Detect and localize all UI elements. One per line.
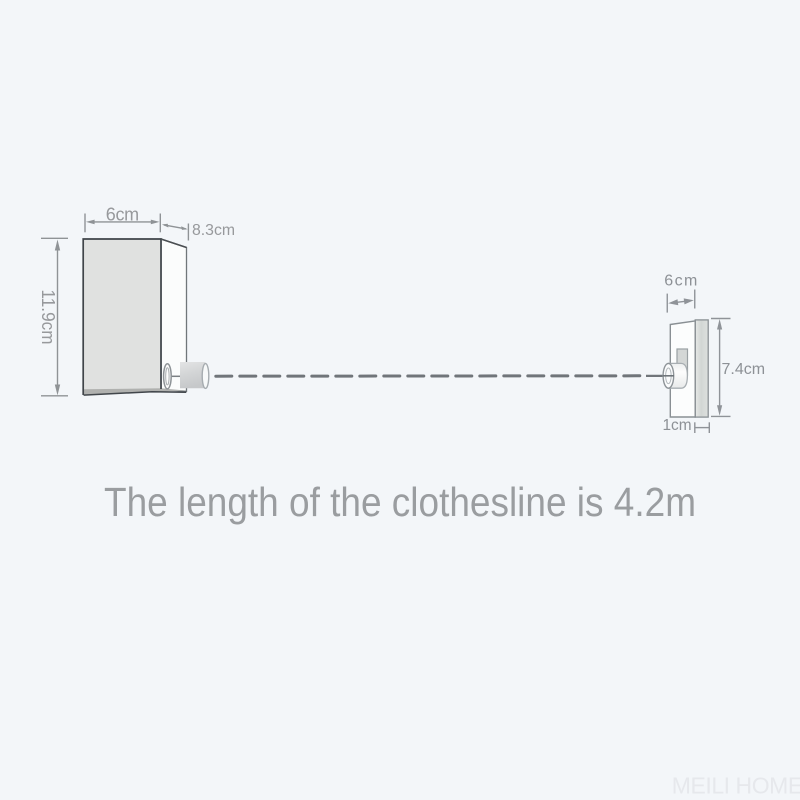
svg-text:7.4cm: 7.4cm bbox=[722, 361, 766, 378]
svg-text:6cm: 6cm bbox=[664, 273, 698, 290]
svg-text:11.9cm: 11.9cm bbox=[38, 290, 58, 345]
svg-text:8.3cm: 8.3cm bbox=[192, 222, 235, 239]
svg-text:6cm: 6cm bbox=[106, 204, 139, 224]
svg-text:1cm: 1cm bbox=[662, 417, 691, 434]
svg-text:The length of the clothesline: The length of the clothesline is 4.2m bbox=[104, 479, 696, 525]
svg-text:MEILI HOME: MEILI HOME bbox=[672, 773, 800, 799]
